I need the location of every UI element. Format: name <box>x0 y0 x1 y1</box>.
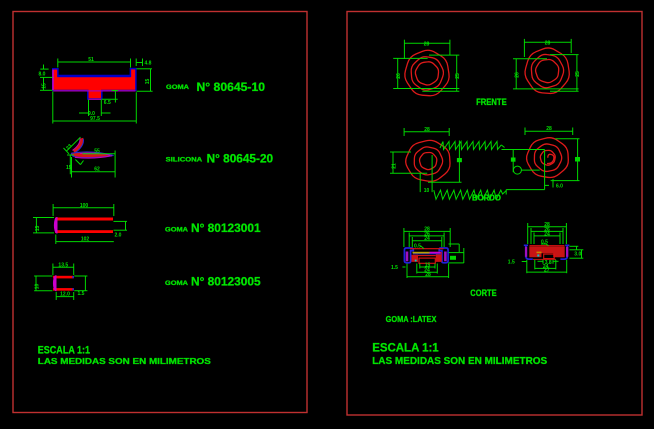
svg-text:0.5: 0.5 <box>414 244 421 250</box>
svg-text:N° 80645-10: N° 80645-10 <box>197 80 266 94</box>
svg-text:1.5: 1.5 <box>391 265 398 271</box>
svg-text:15: 15 <box>145 79 151 85</box>
svg-text:25: 25 <box>575 71 581 77</box>
svg-text:LAS MEDIDAS SON EN MILIMETROS: LAS MEDIDAS SON EN MILIMETROS <box>372 356 547 367</box>
svg-text:28: 28 <box>424 41 430 47</box>
svg-text:28: 28 <box>425 272 431 278</box>
svg-text:24: 24 <box>544 231 550 237</box>
svg-text:GOMA :LATEX: GOMA :LATEX <box>386 315 437 324</box>
svg-text:26: 26 <box>514 72 520 78</box>
svg-text:CORTE: CORTE <box>470 288 496 298</box>
svg-text:51: 51 <box>88 57 94 63</box>
svg-text:10: 10 <box>424 188 430 194</box>
svg-text:13.5: 13.5 <box>58 262 68 268</box>
svg-text:1.5: 1.5 <box>508 259 515 265</box>
svg-text:GOMA: GOMA <box>166 84 189 91</box>
svg-text:ESCALA 1:1: ESCALA 1:1 <box>38 345 90 357</box>
svg-text:SILICONA: SILICONA <box>166 157 203 164</box>
svg-text:6.0: 6.0 <box>556 183 563 189</box>
svg-text:55: 55 <box>94 149 100 155</box>
svg-text:26: 26 <box>396 73 402 79</box>
svg-text:1.5: 1.5 <box>78 291 85 297</box>
svg-text:GOMA: GOMA <box>165 280 188 287</box>
svg-text:FRENTE: FRENTE <box>476 97 507 107</box>
svg-text:6.5: 6.5 <box>104 100 111 106</box>
svg-text:BORDO: BORDO <box>472 193 501 202</box>
svg-text:97.5: 97.5 <box>90 116 100 122</box>
svg-text:3.0: 3.0 <box>574 251 581 257</box>
svg-text:ESCALA 1:1: ESCALA 1:1 <box>372 341 439 355</box>
svg-text:8.0: 8.0 <box>39 72 46 78</box>
svg-text:28: 28 <box>546 126 552 132</box>
svg-text:27: 27 <box>544 268 550 274</box>
svg-text:24: 24 <box>424 236 430 242</box>
svg-text:2.0: 2.0 <box>115 233 122 239</box>
svg-text:10: 10 <box>34 284 40 290</box>
svg-text:N° 80123001: N° 80123001 <box>191 221 261 235</box>
svg-text:N° 80123005: N° 80123005 <box>191 275 261 289</box>
svg-text:N° 80645-20: N° 80645-20 <box>207 152 274 166</box>
svg-text:LAS MEDIDAS SON EN MILIMETROS: LAS MEDIDAS SON EN MILIMETROS <box>38 356 211 366</box>
svg-text:12.0: 12.0 <box>60 292 70 298</box>
svg-text:21: 21 <box>391 163 397 169</box>
svg-text:28: 28 <box>424 127 430 133</box>
svg-text:0.5: 0.5 <box>541 240 548 246</box>
svg-text:100: 100 <box>80 203 89 209</box>
svg-text:15: 15 <box>42 83 48 89</box>
svg-text:4.8: 4.8 <box>145 61 152 67</box>
svg-text:GOMA: GOMA <box>165 226 188 233</box>
svg-text:15: 15 <box>35 226 41 232</box>
svg-text:15: 15 <box>66 165 72 171</box>
svg-text:25: 25 <box>455 73 461 79</box>
svg-text:102: 102 <box>81 237 90 243</box>
svg-text:28: 28 <box>545 41 551 47</box>
svg-text:62: 62 <box>94 167 100 173</box>
